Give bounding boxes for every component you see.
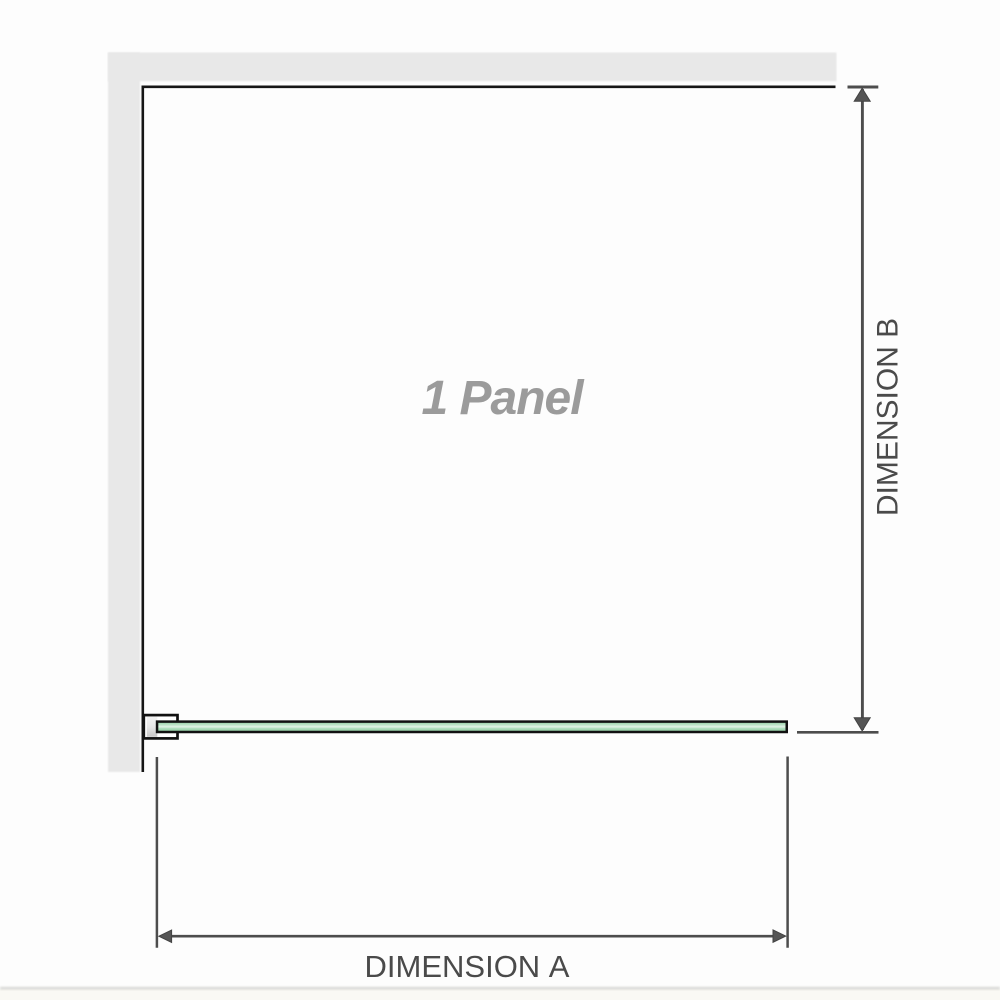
svg-text:DIMENSION A: DIMENSION A (365, 949, 570, 984)
svg-text:1 Panel: 1 Panel (421, 372, 585, 425)
svg-text:DIMENSION B: DIMENSION B (872, 318, 905, 516)
